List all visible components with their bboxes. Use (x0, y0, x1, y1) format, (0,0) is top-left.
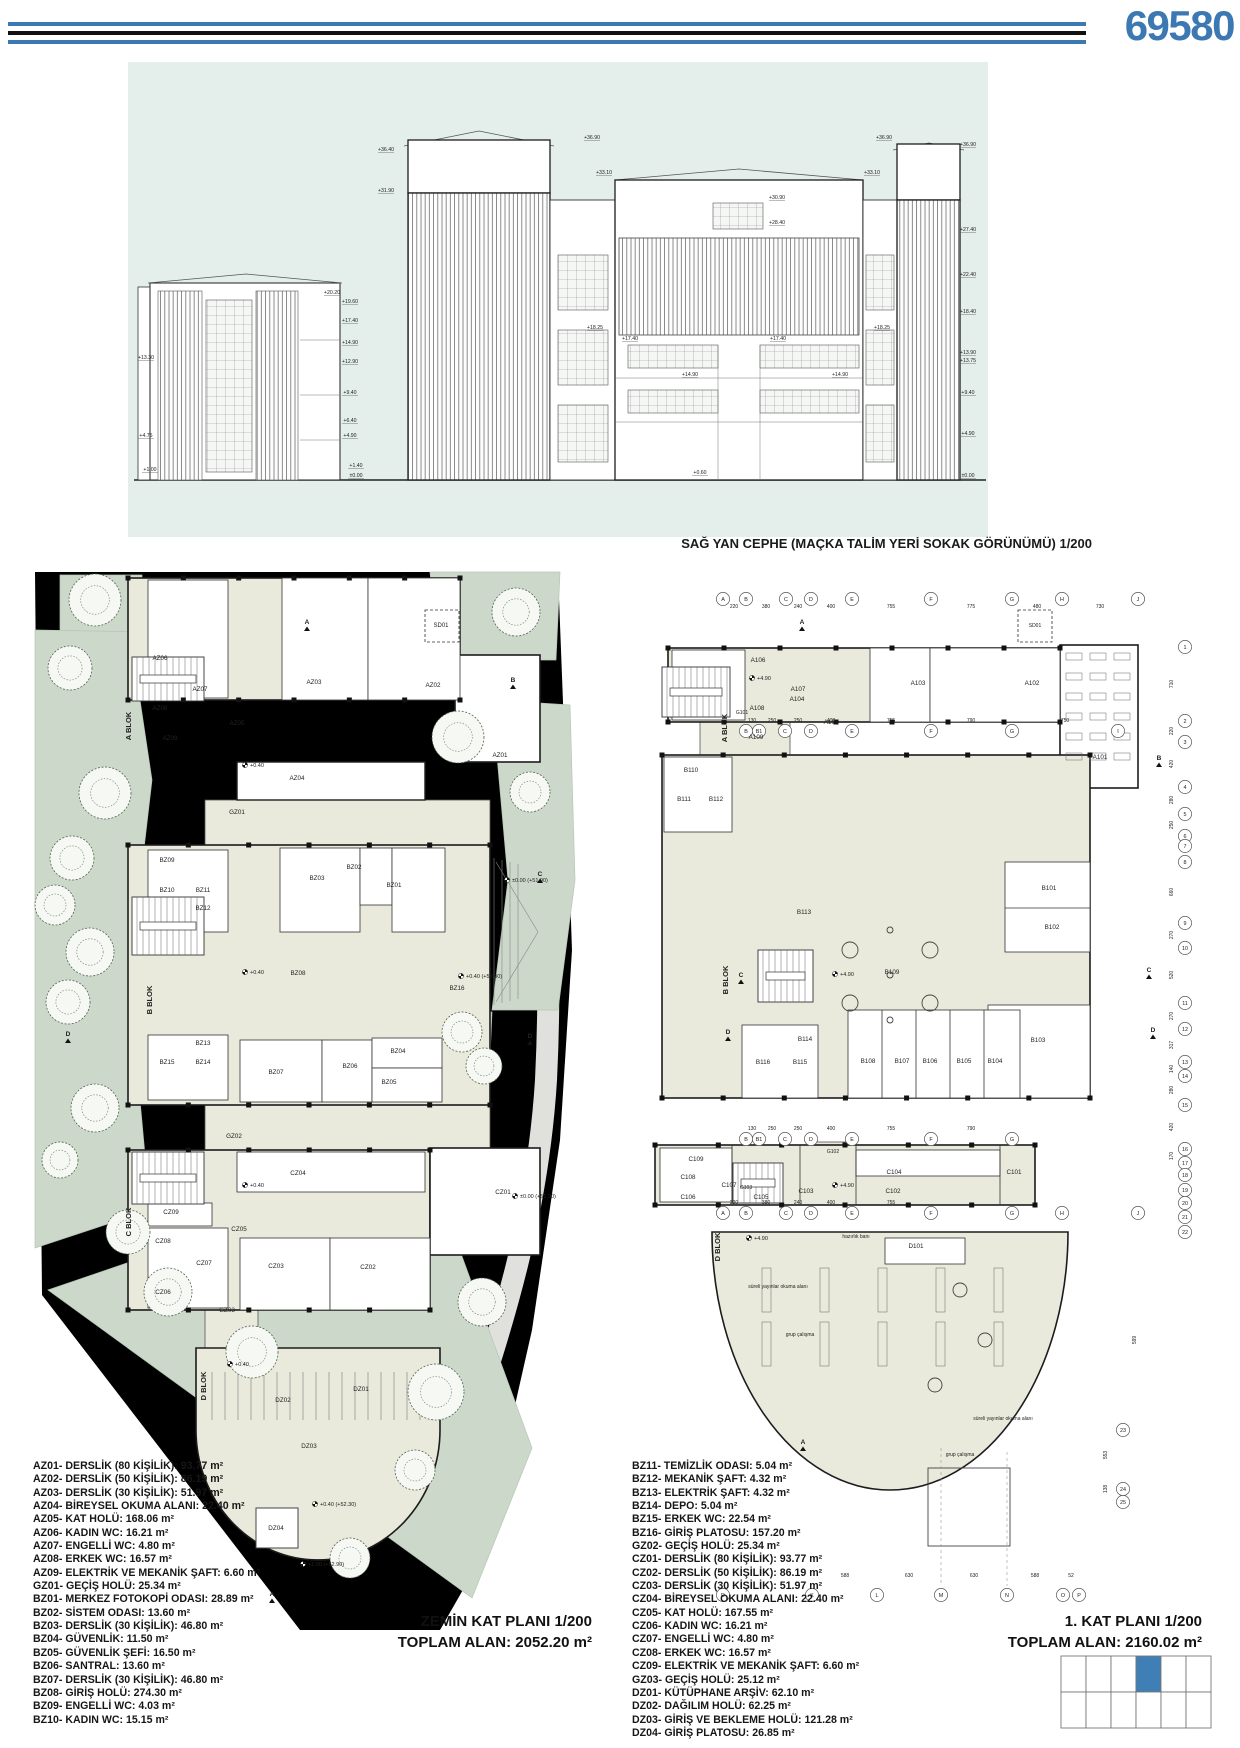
room-label: BZ05 (381, 1079, 397, 1086)
grid-bubble-label: G (1010, 729, 1014, 735)
grid-bubble-label: E (850, 1137, 854, 1143)
grid-bubble-label: 2 (1184, 719, 1187, 725)
keyplan-cell (1186, 1692, 1211, 1728)
column (1002, 720, 1007, 725)
column (186, 1103, 191, 1108)
elevation-right-tower-cap (897, 144, 960, 200)
elevation-level-label: +4.90 (343, 433, 356, 439)
section-marker-letter: A (270, 1591, 275, 1598)
section-marker-letter: A (305, 619, 310, 626)
column (246, 1148, 251, 1153)
annotation-label: süreli yayınlar okuma alanı (973, 1416, 1032, 1422)
tree (66, 928, 114, 976)
elevation-level-label: +18.25 (587, 325, 603, 331)
column (906, 1143, 911, 1148)
legend-entry: AZ04- BİREYSEL OKUMA ALANI: 22.40 m² (33, 1500, 260, 1513)
tree (492, 588, 540, 636)
elevation-level-label: +33.10 (596, 170, 612, 176)
level-marker-label: +0.40 (235, 1362, 249, 1368)
room-label: DZ01 (353, 1386, 369, 1393)
elevation-level-label: +27.40 (960, 227, 976, 233)
grid-bubble-label: C (783, 729, 787, 735)
grid-dimension: 790 (967, 1126, 976, 1132)
grid-dimension: 52 (1068, 1573, 1074, 1579)
grid-dimension: 420 (1169, 760, 1175, 769)
grid-bubble-label: 21 (1182, 1215, 1188, 1221)
column (488, 1103, 493, 1108)
grid-dimension: 138 (1103, 1485, 1109, 1494)
room-label: B114 (798, 1036, 813, 1043)
column (292, 698, 297, 703)
room-label: B105 (957, 1058, 972, 1065)
grid-dimension: 380 (762, 604, 771, 610)
room-label: AZ06 (152, 655, 168, 662)
column (843, 753, 848, 758)
room-label: A101 (1093, 754, 1108, 761)
first-floor-title: 1. KAT PLANI 1/200 TOPLAM ALAN: 2160.02 … (942, 1611, 1202, 1653)
room-label: GZ01 (229, 809, 245, 816)
legend-entry: AZ09- ELEKTRİK VE MEKANİK ŞAFT: 6.60 m² (33, 1567, 260, 1580)
grid-bubble-label: 10 (1182, 946, 1188, 952)
section-marker-arrow (1150, 1035, 1156, 1040)
tree (48, 646, 92, 690)
section-marker-letter: D (726, 1029, 731, 1036)
room-label: BZ09 (159, 857, 175, 864)
room-label: B101 (1042, 885, 1057, 892)
room-label: C103 (798, 1188, 814, 1195)
grid-dimension: 317 (1169, 1041, 1175, 1050)
grid-dimension: 730 (1096, 604, 1105, 610)
room-label: B110 (684, 767, 699, 774)
grid-dimension: 400 (827, 604, 836, 610)
grid-bubble-label: A (721, 597, 725, 603)
room-label: B113 (797, 909, 812, 916)
column (653, 1143, 658, 1148)
grid-bubble-label: 12 (1182, 1027, 1188, 1033)
column (402, 698, 407, 703)
level-marker-label: +4.90 (840, 1183, 854, 1189)
column (292, 576, 297, 581)
header-rule-blue-top (8, 22, 1086, 26)
column (186, 843, 191, 848)
room-label: DZ04 (268, 1525, 284, 1532)
column (458, 698, 463, 703)
elevation-level-label: +28.40 (769, 220, 785, 226)
legend-entry: GZ01- GEÇİŞ HOLÜ: 25.34 m² (33, 1580, 260, 1593)
room-label: A105 (824, 719, 839, 726)
column (126, 1148, 131, 1153)
elevation-level-label: +17.40 (622, 336, 638, 342)
grid-dimension: 130 (748, 1126, 757, 1132)
column (946, 720, 951, 725)
column (965, 753, 970, 758)
legend-entry: AZ01- DERSLİK (80 KİŞİLİK): 93.77 m² (33, 1460, 260, 1473)
legend-entry: BZ05- GÜVENLİK ŞEFİ: 16.50 m² (33, 1647, 260, 1660)
legend-entry: CZ04- BİREYSEL OKUMA ALANI: 22.40 m² (632, 1593, 859, 1606)
column (904, 753, 909, 758)
room-label: B107 (895, 1058, 910, 1065)
column (1033, 1203, 1038, 1208)
grid-bubble-label: 24 (1120, 1487, 1126, 1493)
elevation-svg: +13.30+4.75+1.00+36.40+31.90+20.20+19.60… (128, 62, 988, 537)
legend-entry: CZ03- DERSLİK (30 KİŞİLİK): 51.97 m² (632, 1580, 859, 1593)
level-marker-label: +4.90 (840, 972, 854, 978)
tree (408, 1364, 464, 1420)
grid-bubble-label: 25 (1120, 1500, 1126, 1506)
grid-dimension: 250 (794, 718, 803, 724)
room-label: B103 (1031, 1037, 1046, 1044)
elevation-level-label: +9.40 (343, 390, 356, 396)
room-label: C101 (1006, 1169, 1022, 1176)
room-label: A109 (749, 734, 764, 741)
tree (71, 1084, 119, 1132)
room-label: AZ03 (306, 679, 322, 686)
legend-entry: AZ07- ENGELLİ WC: 4.80 m² (33, 1540, 260, 1553)
room-label: AZ02 (425, 682, 441, 689)
column (666, 646, 671, 651)
block-label: D BLOK (713, 1232, 722, 1261)
room-label: CZ01 (495, 1189, 511, 1196)
room-label: AZ09 (162, 735, 178, 742)
section-marker-arrow (1146, 975, 1152, 980)
section-marker-letter: C (1147, 967, 1152, 974)
tree (42, 1142, 78, 1178)
grid-dimension: 755 (887, 1126, 896, 1132)
column (246, 1103, 251, 1108)
grid-bubble-label: E (850, 1211, 854, 1217)
tree (35, 885, 75, 925)
room-label: A102 (1025, 680, 1040, 687)
column (890, 646, 895, 651)
grid-bubble-label: N (1005, 1593, 1009, 1599)
grid-dimension: 660 (1169, 888, 1175, 897)
legend-entry: AZ02- DERSLİK (50 KİŞİLİK): 86.19 m² (33, 1473, 260, 1486)
misc-labels: SD01 (433, 623, 449, 629)
column (428, 1308, 433, 1313)
level-marker-label: +0.40 (+52.30) (466, 974, 502, 980)
block-label: A BLOK (124, 711, 133, 740)
grid-bubble-label: 22 (1182, 1230, 1188, 1236)
grid-bubble-label: C (784, 1211, 788, 1217)
legend-entry: DZ02- DAĞILIM HOLÜ: 62.25 m² (632, 1700, 859, 1713)
room-label: BZ07 (268, 1069, 284, 1076)
elevation-level-label: +6.40 (343, 418, 356, 424)
elevation-level-label: +22.40 (960, 272, 976, 278)
legend-entry: BZ10- KADIN WC: 15.15 m² (33, 1714, 260, 1727)
column (126, 698, 131, 703)
block-label: C BLOK (124, 1207, 133, 1236)
room-label: BZ03 (309, 875, 325, 882)
room-label: C102 (885, 1188, 901, 1195)
room-label: CZ02 (360, 1264, 376, 1271)
legend-entry: BZ12- MEKANİK ŞAFT: 4.32 m² (632, 1473, 859, 1486)
room-label: CZ07 (196, 1260, 212, 1267)
grid-dimension: 400 (827, 1126, 836, 1132)
level-marker-label: +4.90 (757, 676, 771, 682)
grid-bubble-label: 16 (1182, 1147, 1188, 1153)
room-label: A103 (911, 680, 926, 687)
column (666, 720, 671, 725)
grid-dimension: 553 (1103, 1451, 1109, 1460)
room-label: B115 (793, 1059, 808, 1066)
legend-entry: CZ06- KADIN WC: 16.21 m² (632, 1620, 859, 1633)
grid-dimension: 480 (1033, 604, 1042, 610)
header-rule-blue-bottom (8, 40, 1086, 44)
legend-entry: CZ02- DERSLİK (50 KİŞİLİK): 86.19 m² (632, 1567, 859, 1580)
room-label: A106 (751, 657, 766, 664)
grid-bubble-label: C (784, 597, 788, 603)
column (307, 1148, 312, 1153)
column (906, 1203, 911, 1208)
section-marker-letter: D (528, 1033, 533, 1040)
grid-dimension: 755 (887, 604, 896, 610)
column (488, 843, 493, 848)
room-label: AZ04 (289, 775, 305, 782)
column (236, 698, 241, 703)
column (946, 646, 951, 651)
column (246, 843, 251, 848)
elevation-level-label: +14.90 (832, 372, 848, 378)
grid-dimension: 775 (967, 604, 976, 610)
section-marker-letter: B (511, 677, 516, 684)
column (1026, 753, 1031, 758)
room-label: C106 (680, 1194, 696, 1201)
tree (432, 711, 484, 763)
grid-bubble-label: 4 (1184, 785, 1187, 791)
grid-dimension: 240 (794, 604, 803, 610)
elevation-level-label: +4.90 (961, 431, 974, 437)
column (347, 576, 352, 581)
legend-entry: BZ02- SİSTEM ODASI: 13.60 m² (33, 1607, 260, 1620)
elevation-level-label: +13.30 (138, 355, 154, 361)
room-label: B109 (885, 969, 900, 976)
column (126, 1308, 131, 1313)
grid-bubble-label: G (1010, 1137, 1014, 1143)
grid-dimension: 630 (905, 1573, 914, 1579)
grid-dimension: 220 (730, 1200, 739, 1206)
tree (466, 1048, 502, 1084)
room-label: CZ03 (268, 1263, 284, 1270)
grid-dimension: 130 (748, 718, 757, 724)
legend-entry: DZ03- GİRİŞ VE BEKLEME HOLÜ: 121.28 m² (632, 1714, 859, 1727)
grid-bubble-label: D (809, 597, 813, 603)
room-label: C107 (721, 1182, 737, 1189)
column (307, 843, 312, 848)
grid-dimension: 240 (794, 1200, 803, 1206)
elevation-level-label: +1.40 (349, 463, 362, 469)
legend-entry: BZ11- TEMİZLİK ODASI: 5.04 m² (632, 1460, 859, 1473)
section-marker-letter: D (66, 1031, 71, 1038)
grid-bubble-label: 3 (1184, 740, 1187, 746)
drawing-sheet: 69580 (0, 0, 1240, 1748)
elevation-level-label: +31.90 (378, 188, 394, 194)
column (367, 1103, 372, 1108)
annotation-label: grup çalışma (786, 1332, 815, 1338)
room-label: AZ05 (229, 720, 245, 727)
column (904, 1096, 909, 1101)
grid-bubble-label: A (721, 1211, 725, 1217)
elevation-level-label: +1.00 (143, 467, 156, 473)
room-label: BZ04 (390, 1048, 406, 1055)
keyplan-cell (1086, 1656, 1111, 1692)
grid-bubble-label: 1 (1184, 645, 1187, 651)
plan-title-text: 1. KAT PLANI 1/200 (942, 1611, 1202, 1632)
legend-entry: DZ01- KÜTÜPHANE ARŞİV: 62.10 m² (632, 1687, 859, 1700)
room-label: A108 (750, 705, 765, 712)
elevation-level-label: +19.60 (342, 299, 358, 305)
room-label: DZ02 (275, 1397, 291, 1404)
elevation-level-label: +12.90 (342, 359, 358, 365)
column (722, 646, 727, 651)
grid-bubble-label: H (1060, 1211, 1064, 1217)
column (721, 1096, 726, 1101)
grid-bubble-label: D (809, 1211, 813, 1217)
column (660, 1096, 665, 1101)
section-marker-letter: A (800, 619, 805, 626)
grid-bubble-label: O (1061, 1593, 1065, 1599)
plan-total-area: TOPLAM ALAN: 2052.20 m² (332, 1632, 592, 1653)
legend-entry: BZ09- ENGELLİ WC: 4.03 m² (33, 1700, 260, 1713)
keyplan-cell (1161, 1656, 1186, 1692)
column (778, 720, 783, 725)
level-marker-label: +0.40 (250, 1183, 264, 1189)
section-marker-arrow (799, 627, 805, 632)
legend-entry: AZ05- KAT HOLÜ: 168.06 m² (33, 1513, 260, 1526)
room-label: BZ02 (346, 864, 362, 871)
legend-entry: BZ01- MERKEZ FOTOKOPİ ODASI: 28.89 m² (33, 1593, 260, 1606)
keyplan-cell (1061, 1656, 1086, 1692)
grid-bubble-label: 13 (1182, 1060, 1188, 1066)
room-label: AZ08 (152, 705, 168, 712)
annotation-label: süreli yayınlar okuma alanı (748, 1284, 807, 1290)
room-label: C109 (688, 1156, 704, 1163)
column (307, 1103, 312, 1108)
elevation-level-label: +20.20 (324, 290, 340, 296)
section-marker-letter: A (801, 1439, 806, 1446)
column (782, 1096, 787, 1101)
grid-dimension: 250 (768, 718, 777, 724)
grid-bubble-label: 20 (1182, 1201, 1188, 1207)
legend-entry: AZ03- DERSLİK (30 KİŞİLİK): 51.97 m² (33, 1487, 260, 1500)
annotation-label: hazırlık banı (842, 1234, 869, 1240)
column (716, 1143, 721, 1148)
room-label: B108 (861, 1058, 876, 1065)
legend-entry: BZ14- DEPO: 5.04 m² (632, 1500, 859, 1513)
section-marker-arrow (269, 1599, 275, 1604)
grid-dimension: 750 (1061, 718, 1070, 724)
tree (510, 772, 550, 812)
tree (458, 1278, 506, 1326)
grid-bubble-label: 14 (1182, 1074, 1188, 1080)
grid-bubble-label: B1 (756, 1137, 763, 1143)
block-label: A BLOK (720, 713, 729, 742)
room-label: BZ15 (159, 1059, 175, 1066)
grid-dimension: 588 (1031, 1573, 1040, 1579)
level-marker-label: +1.00 (+52.90) (308, 1562, 344, 1568)
column (126, 1103, 131, 1108)
grid-bubble-label: 23 (1120, 1428, 1126, 1434)
room-label: C108 (680, 1174, 696, 1181)
tree (395, 1450, 435, 1490)
column (1058, 646, 1063, 651)
column (236, 576, 241, 581)
column (427, 843, 432, 848)
legend-entry: AZ08- ERKEK WC: 16.57 m² (33, 1553, 260, 1566)
grid-bubble-label: 8 (1184, 860, 1187, 866)
grid-bubble-label: D (809, 729, 813, 735)
legend-entry: BZ15- ERKEK WC: 22.54 m² (632, 1513, 859, 1526)
grid-dimension: 790 (967, 718, 976, 724)
key-plan (1060, 1654, 1212, 1730)
tree (50, 836, 94, 880)
plan-total-area: TOPLAM ALAN: 2160.02 m² (942, 1632, 1202, 1653)
grid-bubble-label: G (1010, 597, 1014, 603)
shaft-label: SD01 (433, 623, 449, 629)
column (367, 843, 372, 848)
block-label: B BLOK (145, 985, 154, 1014)
room-label: BZ14 (195, 1059, 211, 1066)
grid-bubble-label: E (850, 729, 854, 735)
elevation-level-label: +13.90 (960, 350, 976, 356)
grid-bubble-label: E (850, 597, 854, 603)
keyplan-cell (1111, 1692, 1136, 1728)
elevation-level-label: ±0.00 (962, 473, 975, 479)
grid-bubble-label: 11 (1182, 1001, 1188, 1007)
grid-bubble-label: B (744, 597, 748, 603)
legend-entry: CZ05- KAT HOLÜ: 167.55 m² (632, 1607, 859, 1620)
grid-bubble-label: P (1077, 1593, 1081, 1599)
legend-entry: GZ03- GEÇİŞ HOLÜ: 25.12 m² (632, 1674, 859, 1687)
level-marker-label: ±0.00 (+51.90) (520, 1194, 556, 1200)
column (660, 753, 665, 758)
legend-entry: CZ01- DERSLİK (80 KİŞİLİK): 93.77 m² (632, 1553, 859, 1566)
column (186, 1308, 191, 1313)
elevation-level-label: +36.90 (960, 142, 976, 148)
column (427, 1103, 432, 1108)
elevation-level-label: +17.40 (342, 318, 358, 324)
tree (442, 1012, 482, 1052)
tree (226, 1326, 278, 1378)
room-label: CZ05 (231, 1226, 247, 1233)
grid-dimension: 755 (887, 1200, 896, 1206)
room-label: BZ11 (196, 887, 211, 894)
room-label: BZ16 (449, 985, 465, 992)
elevation-level-label: +4.75 (139, 433, 152, 439)
grid-bubble-label: 9 (1184, 921, 1187, 927)
room-label: GZ03 (219, 1307, 235, 1314)
grid-dimension: 710 (1169, 680, 1175, 689)
grid-dimension: 220 (1169, 727, 1175, 736)
sheet-number: 69580 (1080, 2, 1234, 50)
grid-dimension: 220 (730, 604, 739, 610)
annotation-label: G102 (827, 1149, 839, 1155)
column (721, 753, 726, 758)
column (1033, 1143, 1038, 1148)
legend-entry: BZ13- ELEKTRİK ŞAFT: 4.32 m² (632, 1487, 859, 1500)
level-marker-label: +0.40 (250, 970, 264, 976)
legend-entry: BZ07- DERSLİK (30 KİŞİLİK): 46.80 m² (33, 1674, 260, 1687)
column (428, 1148, 433, 1153)
legend-entry: DZ04- GİRİŞ PLATOSU: 26.85 m² (632, 1727, 859, 1740)
grid-dimension: 170 (1169, 1152, 1175, 1161)
room-label: D101 (908, 1243, 924, 1250)
room-label: BZ08 (290, 970, 306, 977)
section-marker-arrow (1156, 763, 1162, 768)
grid-dimension: 270 (1169, 931, 1175, 940)
column (653, 1203, 658, 1208)
grid-dimension: 520 (1169, 971, 1175, 980)
grid-bubble-label: H (1060, 597, 1064, 603)
